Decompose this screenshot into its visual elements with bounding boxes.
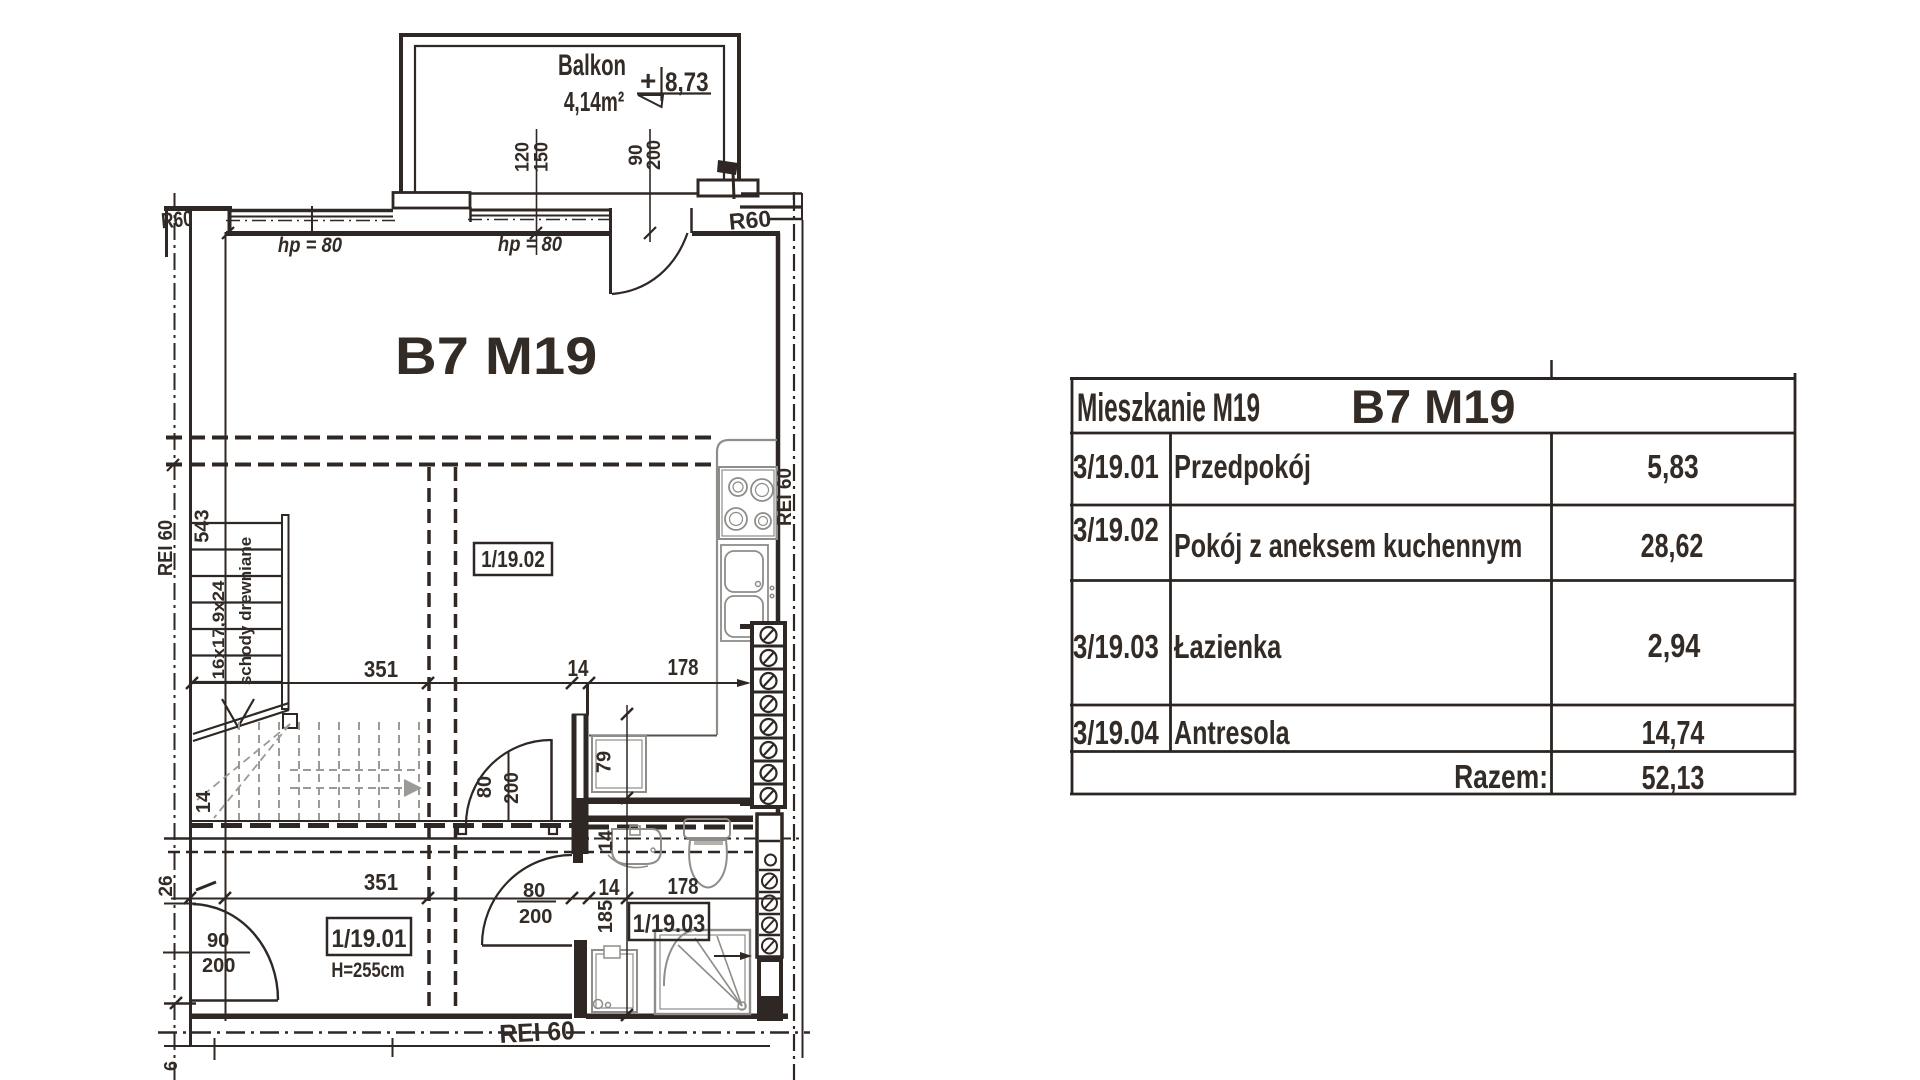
svg-text:200: 200 bbox=[519, 906, 552, 928]
svg-text:52,13: 52,13 bbox=[1642, 760, 1705, 797]
svg-text:200: 200 bbox=[501, 772, 524, 804]
svg-text:3/19.01: 3/19.01 bbox=[1073, 449, 1159, 486]
svg-text:80: 80 bbox=[523, 880, 545, 902]
svg-text:150: 150 bbox=[530, 142, 552, 172]
svg-text:Łazienka: Łazienka bbox=[1174, 629, 1282, 666]
svg-text:80: 80 bbox=[474, 776, 496, 798]
svg-text:5,83: 5,83 bbox=[1647, 449, 1698, 485]
svg-text:3/19.04: 3/19.04 bbox=[1073, 715, 1159, 752]
svg-text:1/19.02: 1/19.02 bbox=[481, 547, 545, 572]
svg-text:REI 60: REI 60 bbox=[774, 468, 797, 526]
svg-text:14: 14 bbox=[596, 830, 617, 852]
svg-text:Przedpokój: Przedpokój bbox=[1174, 449, 1311, 486]
svg-text:351: 351 bbox=[364, 656, 398, 682]
svg-text:3/19.02: 3/19.02 bbox=[1073, 512, 1159, 549]
svg-text:14: 14 bbox=[568, 656, 589, 681]
svg-text:185: 185 bbox=[595, 900, 617, 933]
svg-text:200: 200 bbox=[202, 955, 235, 977]
svg-text:H=255cm: H=255cm bbox=[331, 959, 404, 982]
svg-text:351: 351 bbox=[364, 869, 398, 895]
svg-text:26: 26 bbox=[156, 875, 177, 896]
svg-text:14: 14 bbox=[193, 790, 215, 813]
svg-text:1/19.03: 1/19.03 bbox=[633, 910, 706, 938]
svg-text:16x17,9x24: 16x17,9x24 bbox=[209, 581, 228, 680]
svg-text:Antresola: Antresola bbox=[1174, 715, 1290, 752]
svg-text:79: 79 bbox=[594, 751, 616, 773]
svg-text:hp = 80: hp = 80 bbox=[498, 233, 562, 256]
svg-text:schody drewniane: schody drewniane bbox=[236, 537, 255, 685]
svg-text:200: 200 bbox=[643, 140, 665, 170]
svg-text:REI 60: REI 60 bbox=[499, 1016, 576, 1049]
svg-text:B7 M19: B7 M19 bbox=[395, 326, 597, 385]
svg-text:R60: R60 bbox=[160, 207, 194, 234]
svg-text:Mieszkanie M19: Mieszkanie M19 bbox=[1077, 386, 1260, 431]
svg-text:14: 14 bbox=[599, 875, 620, 900]
svg-text:hp = 80: hp = 80 bbox=[278, 234, 342, 257]
svg-text:90: 90 bbox=[207, 930, 229, 952]
svg-text:1/19.01: 1/19.01 bbox=[331, 925, 406, 953]
svg-text:4,14m²: 4,14m² bbox=[564, 86, 624, 118]
svg-text:28,62: 28,62 bbox=[1641, 528, 1704, 565]
svg-text:B7 M19: B7 M19 bbox=[1351, 380, 1516, 433]
svg-text:3/19.03: 3/19.03 bbox=[1073, 629, 1159, 666]
svg-text:2,94: 2,94 bbox=[1648, 629, 1701, 665]
svg-text:Balkon: Balkon bbox=[558, 49, 626, 82]
svg-text:14,74: 14,74 bbox=[1642, 715, 1705, 752]
svg-text:543: 543 bbox=[192, 509, 214, 542]
svg-text:+: + bbox=[640, 65, 656, 96]
svg-text:R60: R60 bbox=[728, 205, 772, 235]
svg-text:8,73: 8,73 bbox=[665, 68, 709, 97]
svg-text:Pokój z aneksem kuchennym: Pokój z aneksem kuchennym bbox=[1174, 528, 1522, 565]
svg-text:6: 6 bbox=[161, 1061, 181, 1071]
svg-text:REI 60: REI 60 bbox=[155, 520, 177, 576]
svg-text:Razem:: Razem: bbox=[1454, 759, 1548, 795]
svg-text:178: 178 bbox=[667, 655, 698, 680]
svg-text:178: 178 bbox=[667, 874, 698, 899]
